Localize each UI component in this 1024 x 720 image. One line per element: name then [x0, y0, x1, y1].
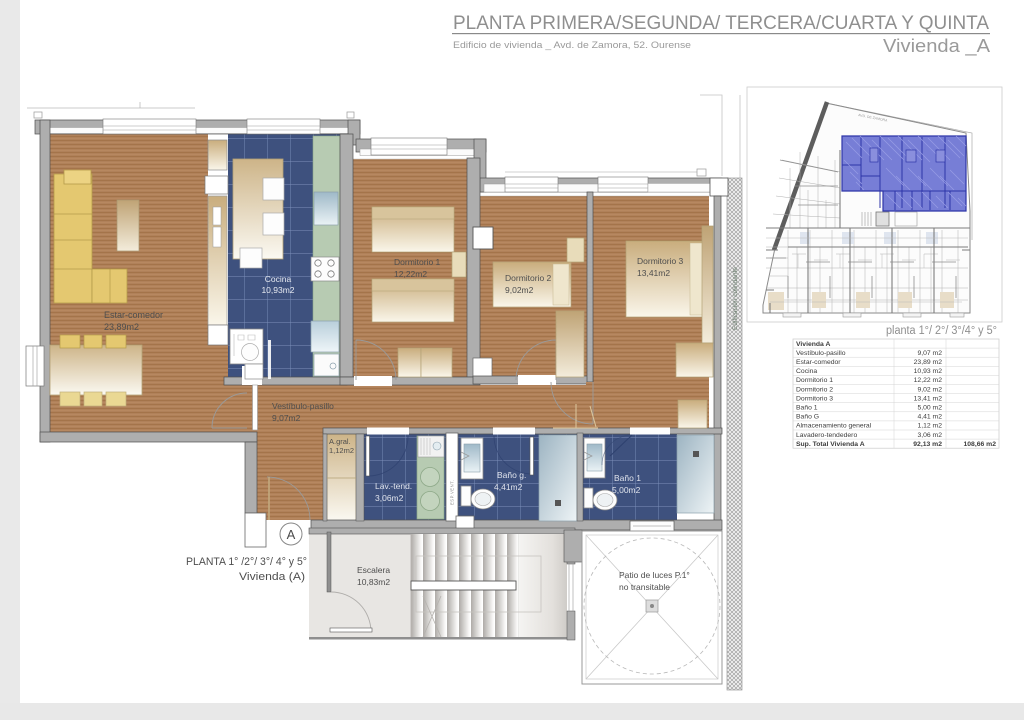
svg-text:108,66 m2: 108,66 m2: [963, 441, 996, 448]
svg-text:A.gral.: A.gral.: [329, 437, 351, 446]
svg-text:10,93m2: 10,93m2: [261, 285, 294, 295]
svg-text:Vivienda _A: Vivienda _A: [883, 36, 990, 57]
svg-text:13,41 m2: 13,41 m2: [914, 395, 943, 402]
svg-text:ESP.VENT.: ESP.VENT.: [450, 480, 455, 505]
svg-text:Dormitorio 1: Dormitorio 1: [796, 377, 833, 384]
svg-text:Dormitorio 2: Dormitorio 2: [505, 273, 552, 283]
svg-text:Dormitorio 2: Dormitorio 2: [796, 386, 833, 393]
svg-text:Baño g.: Baño g.: [497, 470, 526, 480]
svg-text:9,02 m2: 9,02 m2: [917, 386, 942, 393]
svg-text:PLANTA 1° /2°/ 3°/ 4° y 5°: PLANTA 1° /2°/ 3°/ 4° y 5°: [186, 556, 307, 568]
svg-text:Vestíbulo-pasillo: Vestíbulo-pasillo: [272, 401, 334, 411]
svg-text:9,07 m2: 9,07 m2: [917, 350, 942, 357]
svg-text:Lav.-tend.: Lav.-tend.: [375, 481, 412, 491]
svg-text:13,41m2: 13,41m2: [637, 268, 670, 278]
svg-text:4,41 m2: 4,41 m2: [917, 414, 942, 421]
svg-text:Escalera: Escalera: [357, 565, 390, 575]
svg-text:Dormitorio 3: Dormitorio 3: [637, 256, 684, 266]
svg-text:9,07m2: 9,07m2: [272, 413, 301, 423]
svg-text:Vestíbulo-pasillo: Vestíbulo-pasillo: [796, 350, 846, 357]
svg-text:Vivienda A: Vivienda A: [796, 341, 830, 348]
svg-text:Cocina: Cocina: [796, 368, 817, 375]
svg-text:5,00m2: 5,00m2: [612, 485, 641, 495]
svg-text:10,93 m2: 10,93 m2: [914, 368, 943, 375]
svg-text:Edificio de vivienda _ Avd. de: Edificio de vivienda _ Avd. de Zamora, 5…: [453, 40, 691, 51]
svg-text:Estar-comedor: Estar-comedor: [104, 310, 163, 320]
svg-text:92,13 m2: 92,13 m2: [913, 441, 942, 448]
svg-text:12,22 m2: 12,22 m2: [914, 377, 943, 384]
svg-text:3,06 m2: 3,06 m2: [917, 432, 942, 439]
svg-text:Sup. Total Vivienda A: Sup. Total Vivienda A: [796, 441, 865, 448]
svg-text:Baño 1: Baño 1: [614, 473, 641, 483]
svg-text:planta 1°/ 2°/ 3°/4° y 5°: planta 1°/ 2°/ 3°/4° y 5°: [886, 325, 997, 337]
svg-text:Dormitorio 1: Dormitorio 1: [394, 257, 441, 267]
svg-text:23,89 m2: 23,89 m2: [914, 359, 943, 366]
svg-text:23,89m2: 23,89m2: [104, 322, 139, 332]
svg-text:9,02m2: 9,02m2: [505, 285, 534, 295]
svg-text:10,83m2: 10,83m2: [357, 577, 390, 587]
svg-text:1,12 m2: 1,12 m2: [917, 423, 942, 430]
svg-text:PLANTA PRIMERA/SEGUNDA/ TERCER: PLANTA PRIMERA/SEGUNDA/ TERCERA/CUARTA Y…: [453, 13, 989, 34]
svg-text:12,22m2: 12,22m2: [394, 269, 427, 279]
svg-text:Cocina: Cocina: [265, 274, 292, 284]
svg-text:1,12m2: 1,12m2: [329, 446, 354, 455]
svg-text:5,00 m2: 5,00 m2: [917, 405, 942, 412]
svg-text:Almacenamiento general: Almacenamiento general: [796, 423, 872, 430]
svg-text:Vivienda (A): Vivienda (A): [239, 571, 305, 583]
svg-text:A: A: [287, 527, 296, 542]
svg-text:3,06m2: 3,06m2: [375, 493, 404, 503]
svg-text:Dormitorio 3: Dormitorio 3: [796, 395, 833, 402]
svg-text:no transitable: no transitable: [619, 582, 670, 592]
svg-text:Baño 1: Baño 1: [796, 405, 818, 412]
svg-text:Patio de luces P.1°: Patio de luces P.1°: [619, 570, 690, 580]
svg-text:Edificación colindante: Edificación colindante: [732, 267, 739, 330]
svg-text:4,41m2: 4,41m2: [494, 482, 523, 492]
svg-text:Lavadero-tendedero: Lavadero-tendedero: [796, 432, 857, 439]
svg-text:Estar-comedor: Estar-comedor: [796, 359, 841, 366]
svg-text:Baño G: Baño G: [796, 414, 819, 421]
